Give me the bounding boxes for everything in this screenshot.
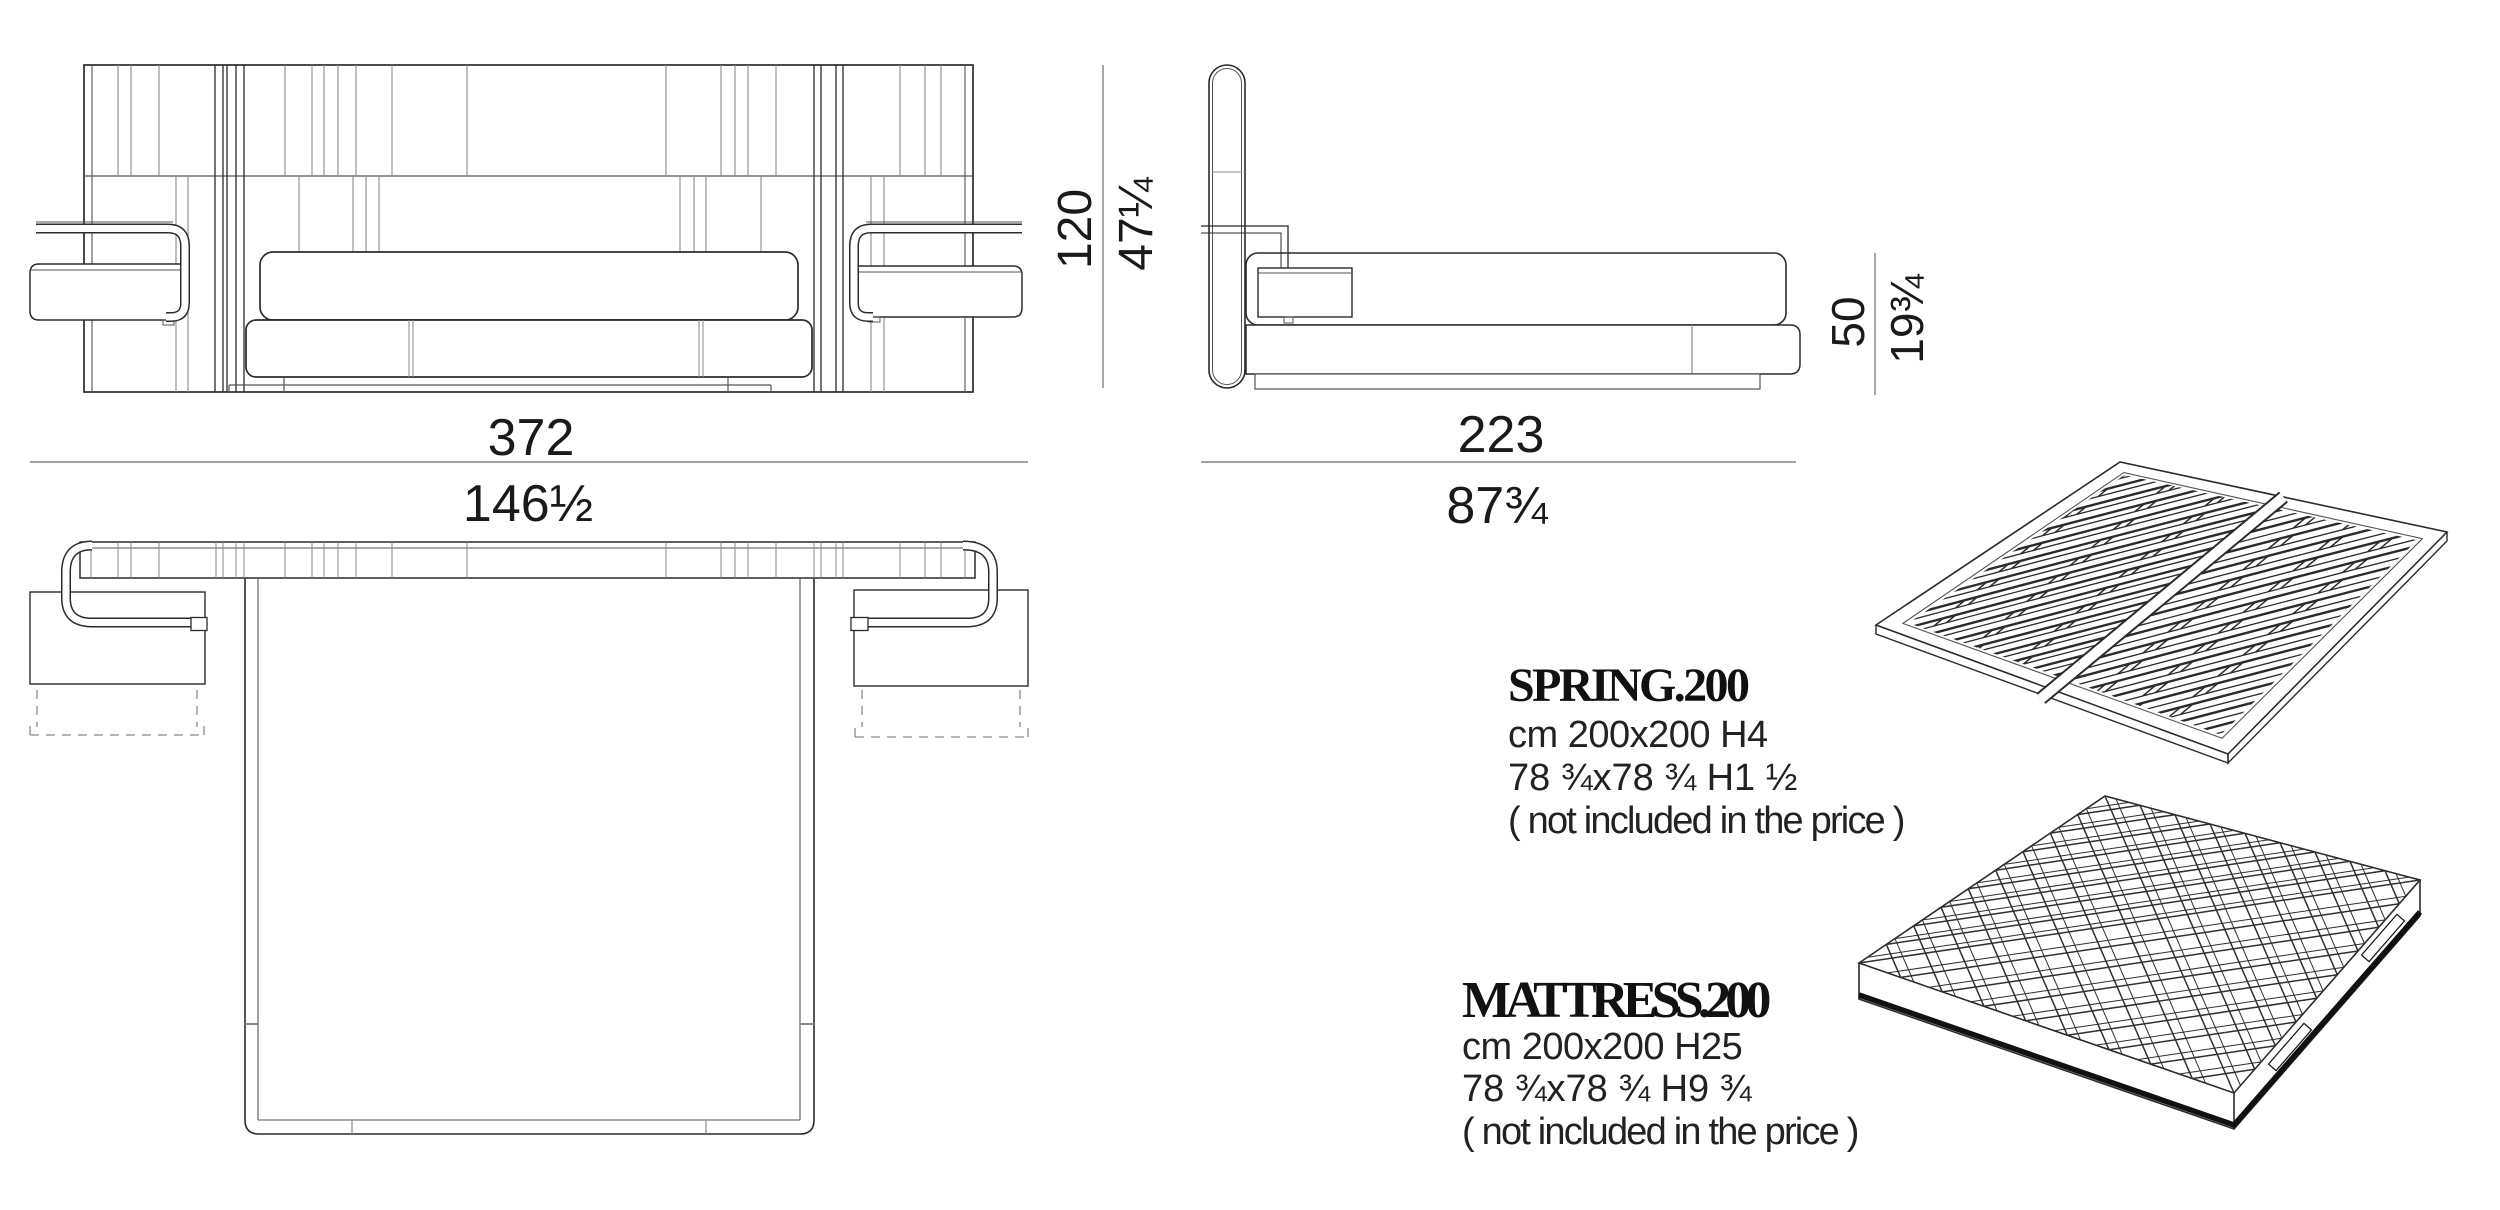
svg-text:cm 200x200 H4: cm 200x200 H4 xyxy=(1508,714,1768,756)
svg-text:50: 50 xyxy=(1822,296,1874,347)
svg-text:87¾: 87¾ xyxy=(1446,477,1548,535)
svg-text:78 ¾x78 ¾ H1 ½: 78 ¾x78 ¾ H1 ½ xyxy=(1508,757,1797,799)
svg-text:cm 200x200 H25: cm 200x200 H25 xyxy=(1462,1026,1742,1068)
svg-text:19¾: 19¾ xyxy=(1881,274,1933,364)
svg-text:47¼: 47¼ xyxy=(1110,176,1163,270)
svg-text:120: 120 xyxy=(1049,189,1102,269)
svg-text:372: 372 xyxy=(488,409,575,467)
svg-text:146½: 146½ xyxy=(463,475,593,533)
svg-text:223: 223 xyxy=(1458,406,1545,464)
svg-text:( not included in the price ): ( not included in the price ) xyxy=(1508,800,1904,842)
svg-text:78 ¾x78 ¾ H9 ¾: 78 ¾x78 ¾ H9 ¾ xyxy=(1462,1068,1753,1110)
svg-text:SPRING.200: SPRING.200 xyxy=(1508,659,1749,712)
svg-text:( not included in the price ): ( not included in the price ) xyxy=(1462,1111,1858,1153)
svg-text:MATTRESS.200: MATTRESS.200 xyxy=(1462,972,1770,1029)
